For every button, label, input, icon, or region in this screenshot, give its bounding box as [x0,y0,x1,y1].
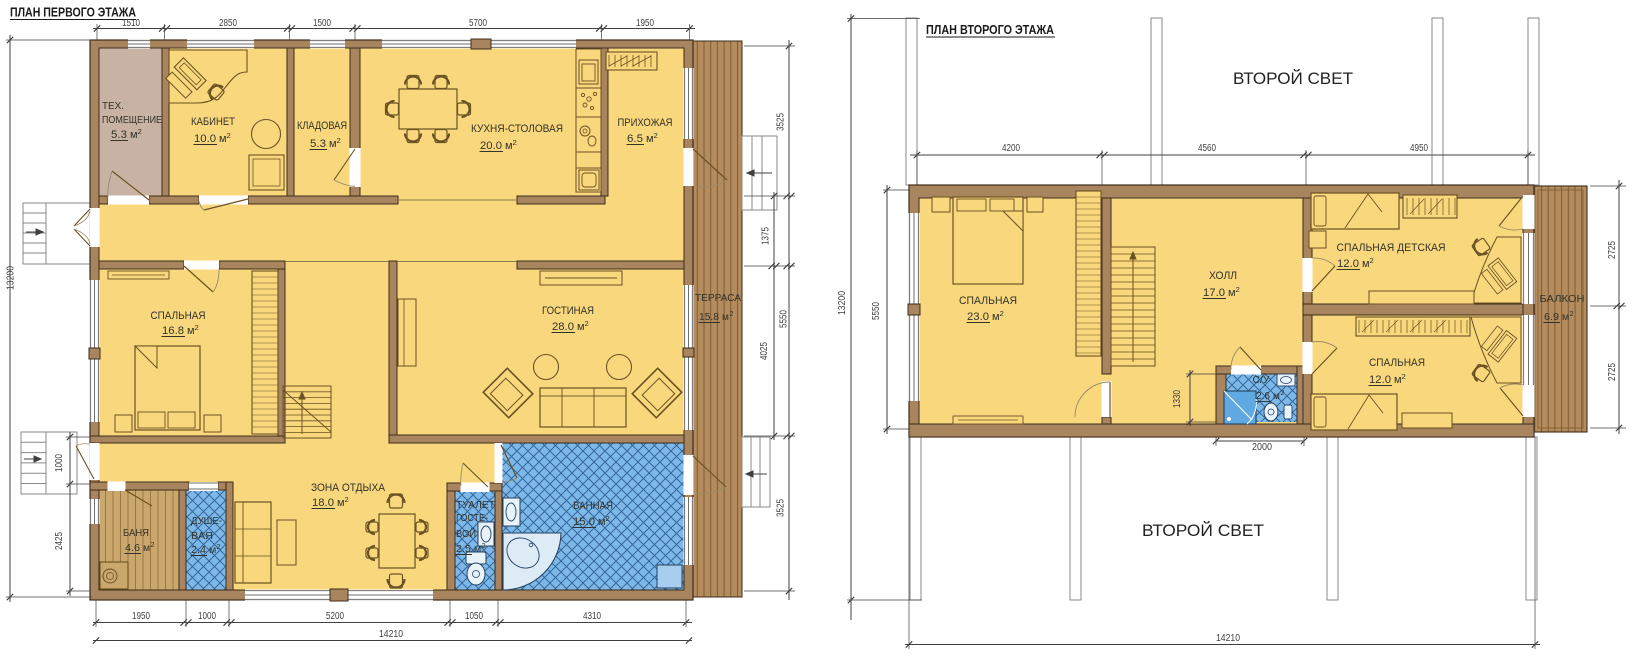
svg-text:2: 2 [138,127,142,136]
svg-text:2725: 2725 [1607,241,1618,259]
svg-text:ПРИХОЖАЯ: ПРИХОЖАЯ [618,117,673,129]
svg-text:ЗОНА ОТДЫХА: ЗОНА ОТДЫХА [311,482,386,494]
svg-text:20.0: 20.0 [480,140,502,152]
svg-text:м: м [992,311,1000,323]
svg-text:1950: 1950 [636,18,654,29]
svg-text:2425: 2425 [54,532,65,550]
svg-text:1050: 1050 [465,611,483,622]
svg-text:м: м [1362,258,1370,270]
svg-text:КУХНЯ-СТОЛОВАЯ: КУХНЯ-СТОЛОВАЯ [471,123,563,135]
svg-text:ГОСТИНАЯ: ГОСТИНАЯ [542,305,594,317]
svg-text:м: м [1394,374,1402,386]
svg-text:13200: 13200 [6,266,17,290]
svg-text:СПАЛЬНАЯ ДЕТСКАЯ: СПАЛЬНАЯ ДЕТСКАЯ [1337,242,1446,254]
svg-text:м: м [505,140,513,152]
svg-text:14210: 14210 [379,629,403,640]
svg-text:КАБИНЕТ: КАБИНЕТ [191,116,235,128]
svg-text:м: м [209,544,216,556]
svg-text:2: 2 [1000,309,1004,318]
svg-text:12.0: 12.0 [1337,258,1359,270]
svg-text:м: м [219,133,227,145]
svg-text:ГОСТЕ-: ГОСТЕ- [456,512,488,524]
svg-text:5550: 5550 [779,310,790,328]
svg-text:ТЕХ.: ТЕХ. [102,100,124,112]
svg-text:10.0: 10.0 [194,133,216,145]
svg-text:ТУАЛЕТ: ТУАЛЕТ [456,499,496,511]
svg-text:2: 2 [1570,309,1574,318]
svg-text:2: 2 [1402,372,1406,381]
svg-text:4560: 4560 [1198,143,1216,154]
svg-text:1510: 1510 [122,18,140,29]
svg-text:18.0: 18.0 [312,497,334,509]
svg-text:СПАЛЬНАЯ: СПАЛЬНАЯ [1369,357,1425,369]
svg-text:ПЛАН ВТОРОГО ЭТАЖА: ПЛАН ВТОРОГО ЭТАЖА [926,23,1054,37]
svg-text:4.6: 4.6 [125,542,140,554]
svg-text:1950: 1950 [132,611,150,622]
svg-text:КЛАДОВАЯ: КЛАДОВАЯ [297,120,347,132]
svg-text:м: м [1228,287,1236,299]
svg-text:ПЛАН ПЕРВОГО ЭТАЖА: ПЛАН ПЕРВОГО ЭТАЖА [10,6,136,20]
svg-text:17.0: 17.0 [1203,287,1225,299]
svg-text:ВТОРОЙ СВЕТ: ВТОРОЙ СВЕТ [1142,521,1264,540]
svg-text:2725: 2725 [1607,363,1618,381]
svg-text:2: 2 [654,131,658,140]
svg-text:ХОЛЛ: ХОЛЛ [1209,270,1237,282]
svg-text:2: 2 [1281,390,1285,397]
svg-text:2850: 2850 [219,18,237,29]
svg-text:23.0: 23.0 [967,311,989,323]
svg-text:2: 2 [1236,285,1240,294]
svg-text:2: 2 [585,319,589,328]
svg-text:12.0: 12.0 [1369,374,1391,386]
svg-text:16.8: 16.8 [162,325,184,337]
svg-text:м: м [187,325,195,337]
svg-text:БАНЯ: БАНЯ [123,527,149,539]
svg-text:2: 2 [337,136,341,145]
svg-text:м: м [577,321,585,333]
svg-text:ВТОРОЙ СВЕТ: ВТОРОЙ СВЕТ [1233,69,1353,88]
svg-text:ПОМЕЩЕНИЕ: ПОМЕЩЕНИЕ [102,114,162,126]
svg-text:м: м [474,543,481,555]
svg-text:1375: 1375 [761,227,772,245]
svg-text:5550: 5550 [871,302,882,320]
svg-text:1330: 1330 [1172,390,1183,408]
svg-text:1000: 1000 [54,454,65,472]
svg-text:ДУШЕ-: ДУШЕ- [191,515,222,527]
svg-text:3525: 3525 [776,113,787,131]
svg-text:ТЕРРАСА: ТЕРРАСА [695,293,741,304]
svg-text:СПАЛЬНАЯ: СПАЛЬНАЯ [959,295,1017,307]
svg-text:5700: 5700 [469,18,487,29]
svg-text:ВАННАЯ: ВАННАЯ [573,500,613,512]
svg-text:БАЛКОН: БАЛКОН [1540,293,1585,305]
svg-text:4200: 4200 [1002,143,1020,154]
svg-text:2.5: 2.5 [456,543,471,555]
svg-text:м: м [1273,391,1280,402]
svg-text:4025: 4025 [759,342,770,360]
svg-text:2: 2 [730,311,734,318]
svg-text:14210: 14210 [1216,633,1240,644]
svg-text:2000: 2000 [1252,442,1272,453]
svg-text:2: 2 [195,323,199,332]
svg-text:2: 2 [151,540,155,549]
svg-text:С/У: С/У [1253,375,1271,386]
svg-text:2: 2 [345,495,349,504]
svg-text:м: м [130,129,138,141]
svg-text:28.0: 28.0 [552,321,574,333]
svg-text:5.3: 5.3 [310,138,326,150]
svg-text:2: 2 [482,541,486,550]
svg-text:6.9: 6.9 [1544,311,1559,323]
svg-text:м: м [329,138,337,150]
svg-text:4950: 4950 [1410,143,1428,154]
svg-text:м: м [598,516,606,528]
svg-text:4310: 4310 [583,611,601,622]
svg-text:СПАЛЬНАЯ: СПАЛЬНАЯ [151,310,206,322]
svg-text:13200: 13200 [837,291,848,315]
svg-text:ВОЙ: ВОЙ [456,527,476,540]
svg-text:5.3: 5.3 [111,129,127,141]
svg-text:м: м [722,312,729,323]
svg-text:м: м [143,542,150,554]
svg-text:15.0: 15.0 [573,516,595,528]
svg-text:м: м [337,497,345,509]
svg-text:2: 2 [227,131,231,140]
svg-text:м: м [1562,311,1569,323]
svg-text:2: 2 [217,542,221,551]
svg-text:1000: 1000 [198,611,216,622]
svg-text:1500: 1500 [313,18,331,29]
svg-text:2.6: 2.6 [1256,391,1270,402]
svg-text:2: 2 [606,514,610,523]
svg-text:3525: 3525 [776,499,787,517]
svg-text:6.5: 6.5 [627,133,643,145]
svg-text:2: 2 [1370,256,1374,265]
svg-text:ВАЯ: ВАЯ [191,530,213,542]
svg-text:2: 2 [513,138,517,147]
svg-text:м: м [646,133,654,145]
svg-text:5200: 5200 [326,611,344,622]
svg-text:15.8: 15.8 [699,312,719,323]
svg-text:2.4: 2.4 [191,544,206,556]
